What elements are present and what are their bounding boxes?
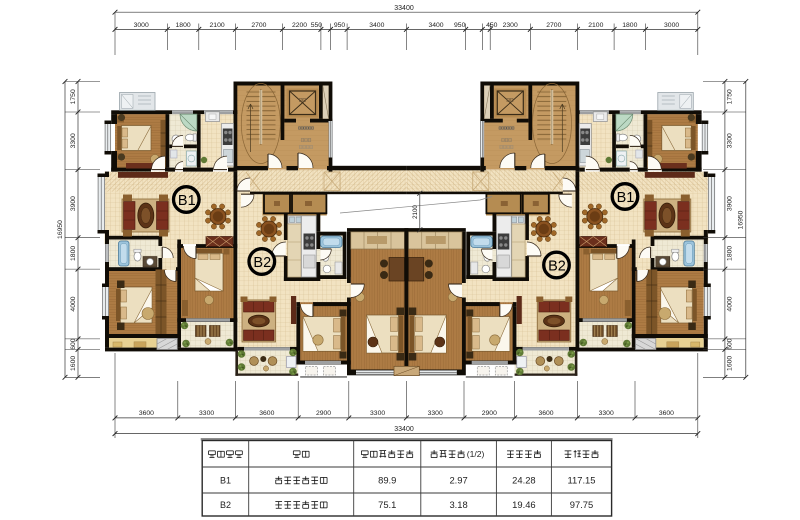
svg-text:3300: 3300 [428,410,443,417]
svg-text:3.18: 3.18 [449,499,467,510]
svg-text:B1: B1 [617,190,635,206]
svg-text:950: 950 [334,22,346,29]
svg-text:3600: 3600 [659,410,674,417]
svg-text:3600: 3600 [259,410,274,417]
svg-text:3900: 3900 [727,196,734,211]
svg-text:3300: 3300 [70,133,77,148]
svg-text:1600: 1600 [727,356,734,371]
svg-text:3400: 3400 [369,22,384,29]
svg-text:1800: 1800 [727,246,734,261]
svg-text:600: 600 [70,338,77,350]
svg-text:950: 950 [454,22,466,29]
svg-text:B2: B2 [548,258,566,274]
svg-text:16950: 16950 [738,210,745,229]
svg-text:550: 550 [311,22,323,29]
svg-text:97.75: 97.75 [570,499,593,510]
svg-text:2.97: 2.97 [449,474,467,485]
svg-text:B1: B1 [178,193,196,209]
svg-text:1800: 1800 [176,22,191,29]
svg-text:B2: B2 [220,500,231,510]
svg-text:19.46: 19.46 [512,499,535,510]
svg-text:1750: 1750 [727,89,734,104]
svg-text:2900: 2900 [316,410,331,417]
svg-text:117.15: 117.15 [568,474,596,485]
svg-text:3300: 3300 [727,133,734,148]
svg-text:3600: 3600 [538,410,553,417]
svg-text:2900: 2900 [482,410,497,417]
svg-text:3300: 3300 [199,410,214,417]
svg-text:24.28: 24.28 [512,474,535,485]
svg-text:2300: 2300 [503,22,518,29]
svg-text:2100: 2100 [210,22,225,29]
svg-text:75.1: 75.1 [378,499,396,510]
svg-text:2700: 2700 [546,22,561,29]
svg-text:4000: 4000 [70,296,77,311]
svg-text:2700: 2700 [251,22,266,29]
svg-text:B1: B1 [220,475,231,485]
svg-text:3000: 3000 [134,22,149,29]
svg-text:2100: 2100 [412,205,419,219]
svg-text:1600: 1600 [70,356,77,371]
svg-text:4000: 4000 [727,296,734,311]
svg-text:33400: 33400 [394,5,414,12]
svg-text:16950: 16950 [57,220,64,239]
svg-text:(1/2): (1/2) [467,449,485,459]
svg-text:3300: 3300 [599,410,614,417]
svg-text:1750: 1750 [70,89,77,104]
svg-text:B2: B2 [253,255,271,271]
svg-text:450: 450 [486,22,498,29]
svg-text:1800: 1800 [622,22,637,29]
svg-text:2100: 2100 [588,22,603,29]
svg-text:3600: 3600 [139,410,154,417]
svg-text:1800: 1800 [70,246,77,261]
svg-text:600: 600 [727,338,734,350]
svg-text:3400: 3400 [428,22,443,29]
svg-text:3300: 3300 [370,410,385,417]
svg-text:33400: 33400 [394,426,414,433]
svg-text:3000: 3000 [664,22,679,29]
svg-text:89.9: 89.9 [378,474,396,485]
svg-text:3900: 3900 [70,196,77,211]
svg-text:2200: 2200 [292,22,307,29]
